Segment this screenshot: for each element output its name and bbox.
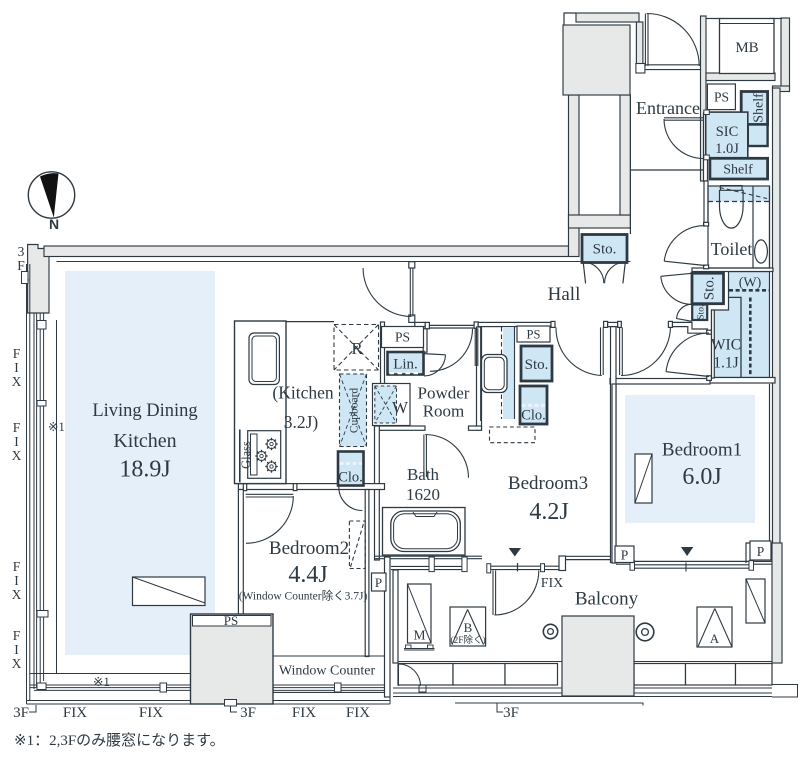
svg-text:Powder: Powder: [418, 384, 470, 403]
svg-text:Bedroom2: Bedroom2: [269, 538, 349, 559]
svg-text:18.9J: 18.9J: [119, 457, 170, 483]
svg-text:PS: PS: [527, 328, 541, 342]
svg-text:Window Counter: Window Counter: [279, 664, 376, 679]
svg-text:Hall: Hall: [548, 284, 581, 305]
svg-text:4.2J: 4.2J: [529, 499, 568, 525]
svg-text:M: M: [413, 628, 425, 643]
svg-text:Kitchen: Kitchen: [113, 430, 176, 452]
svg-text:Bedroom1: Bedroom1: [662, 440, 742, 461]
svg-text:Living Dining: Living Dining: [92, 401, 197, 421]
svg-text:Toilet: Toilet: [711, 239, 753, 259]
svg-text:FIX: FIX: [63, 705, 87, 721]
svg-text:W: W: [392, 398, 409, 417]
svg-text:PS: PS: [395, 330, 410, 345]
svg-text:Cupboard: Cupboard: [349, 388, 361, 434]
svg-text:Bath: Bath: [407, 465, 440, 484]
svg-text:P: P: [375, 575, 382, 590]
svg-text:Bedroom3: Bedroom3: [508, 473, 588, 494]
svg-text:I: I: [14, 434, 19, 449]
svg-text:1.1J: 1.1J: [713, 355, 738, 372]
svg-text:(Kitchen: (Kitchen: [272, 383, 333, 403]
svg-text:X: X: [12, 656, 22, 671]
svg-text:1.0J: 1.0J: [715, 141, 739, 157]
svg-text:Sto.: Sto.: [702, 276, 718, 300]
svg-text:F: F: [13, 346, 21, 361]
svg-text:F: F: [17, 258, 25, 273]
svg-text:Glass: Glass: [239, 441, 253, 469]
svg-text:Shelf: Shelf: [752, 93, 767, 123]
svg-text:PS: PS: [224, 613, 238, 628]
svg-text:I: I: [14, 642, 19, 657]
svg-text:Clo.: Clo.: [338, 470, 363, 486]
svg-text:P: P: [757, 544, 765, 559]
svg-text:I: I: [14, 573, 19, 588]
svg-text:※1：2,3Fのみ腰窓になります。: ※1：2,3Fのみ腰窓になります。: [14, 731, 225, 749]
svg-text:3F: 3F: [503, 705, 519, 721]
svg-text:X: X: [12, 374, 22, 389]
svg-text:X: X: [12, 448, 22, 463]
svg-text:(Window Counter除く3.7J): (Window Counter除く3.7J): [239, 589, 368, 603]
svg-text:SIC: SIC: [716, 124, 739, 140]
svg-text:F: F: [13, 559, 21, 574]
svg-text:Clo.: Clo.: [521, 408, 546, 424]
svg-text:3.2J): 3.2J): [284, 412, 319, 432]
svg-text:Balcony: Balcony: [575, 589, 639, 610]
svg-text:※1: ※1: [93, 675, 110, 689]
svg-text:Shelf: Shelf: [723, 163, 753, 178]
svg-text:R: R: [351, 339, 363, 358]
svg-text:FIX: FIX: [292, 705, 316, 721]
svg-text:P: P: [621, 548, 629, 563]
svg-text:※1: ※1: [48, 420, 65, 434]
svg-text:3F: 3F: [240, 705, 256, 721]
svg-text:3: 3: [18, 244, 25, 259]
svg-text:B: B: [464, 620, 473, 635]
svg-text:4.4J: 4.4J: [288, 562, 327, 588]
svg-text:FIX: FIX: [541, 576, 564, 591]
svg-text:Sto.: Sto.: [525, 357, 549, 373]
svg-text:F: F: [13, 628, 21, 643]
svg-text:(2F除く): (2F除く): [450, 634, 485, 646]
svg-text:6.0J: 6.0J: [682, 464, 721, 490]
svg-text:PS: PS: [714, 90, 729, 105]
svg-text:N: N: [49, 216, 59, 232]
svg-text:FIX: FIX: [139, 705, 163, 721]
svg-text:F: F: [13, 420, 21, 435]
svg-text:Sto.: Sto.: [593, 242, 617, 258]
svg-text:Lin.: Lin.: [393, 357, 418, 373]
svg-text:Sto.: Sto.: [697, 305, 707, 320]
svg-text:MB: MB: [735, 40, 758, 56]
svg-text:Room: Room: [423, 402, 465, 421]
svg-text:I: I: [14, 360, 19, 375]
svg-text:X: X: [12, 587, 22, 602]
svg-text:1620: 1620: [406, 485, 440, 504]
svg-text:FIX: FIX: [346, 705, 370, 721]
svg-text:A: A: [710, 631, 720, 646]
svg-text:WIC: WIC: [711, 337, 741, 354]
svg-text:3F: 3F: [13, 705, 29, 721]
svg-text:Entrance: Entrance: [636, 98, 700, 118]
svg-text:(W): (W): [739, 276, 762, 291]
